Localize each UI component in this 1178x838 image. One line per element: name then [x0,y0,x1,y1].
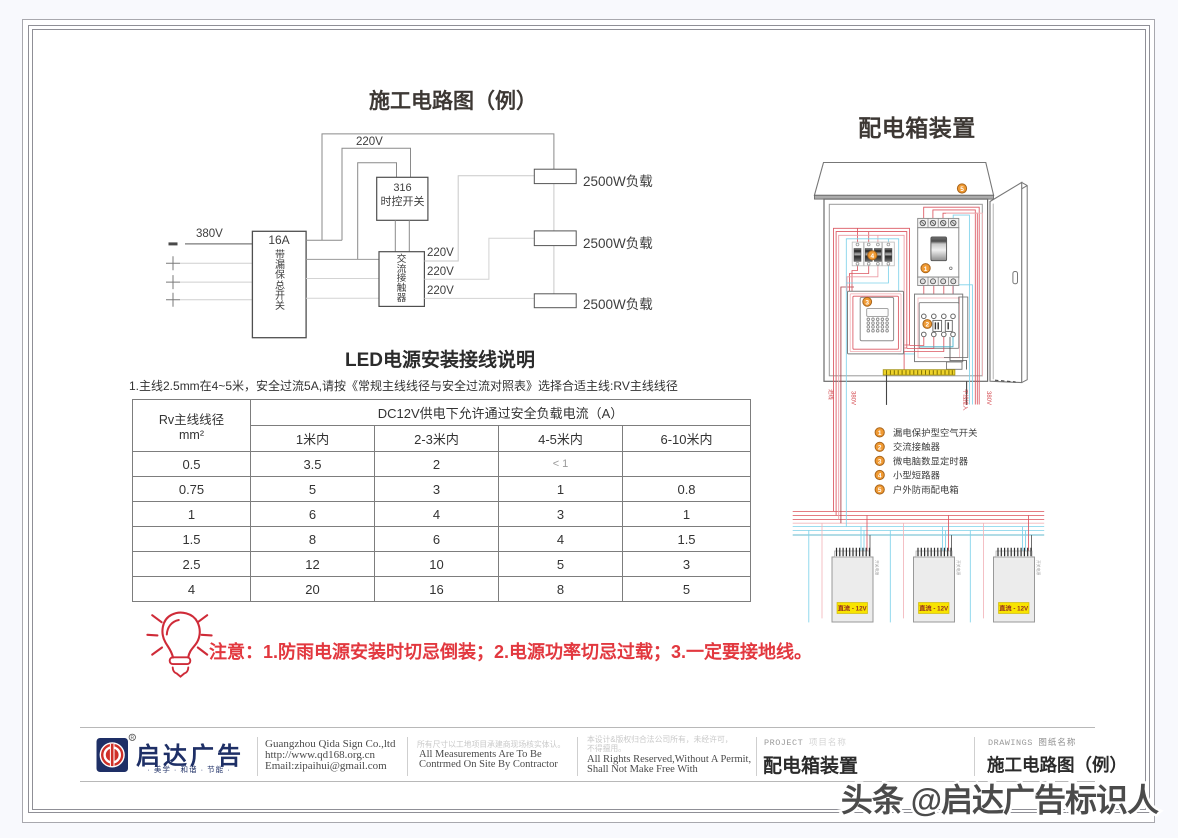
svg-text:头条 @启达广告标识人: 头条 @启达广告标识人 [841,782,1159,818]
